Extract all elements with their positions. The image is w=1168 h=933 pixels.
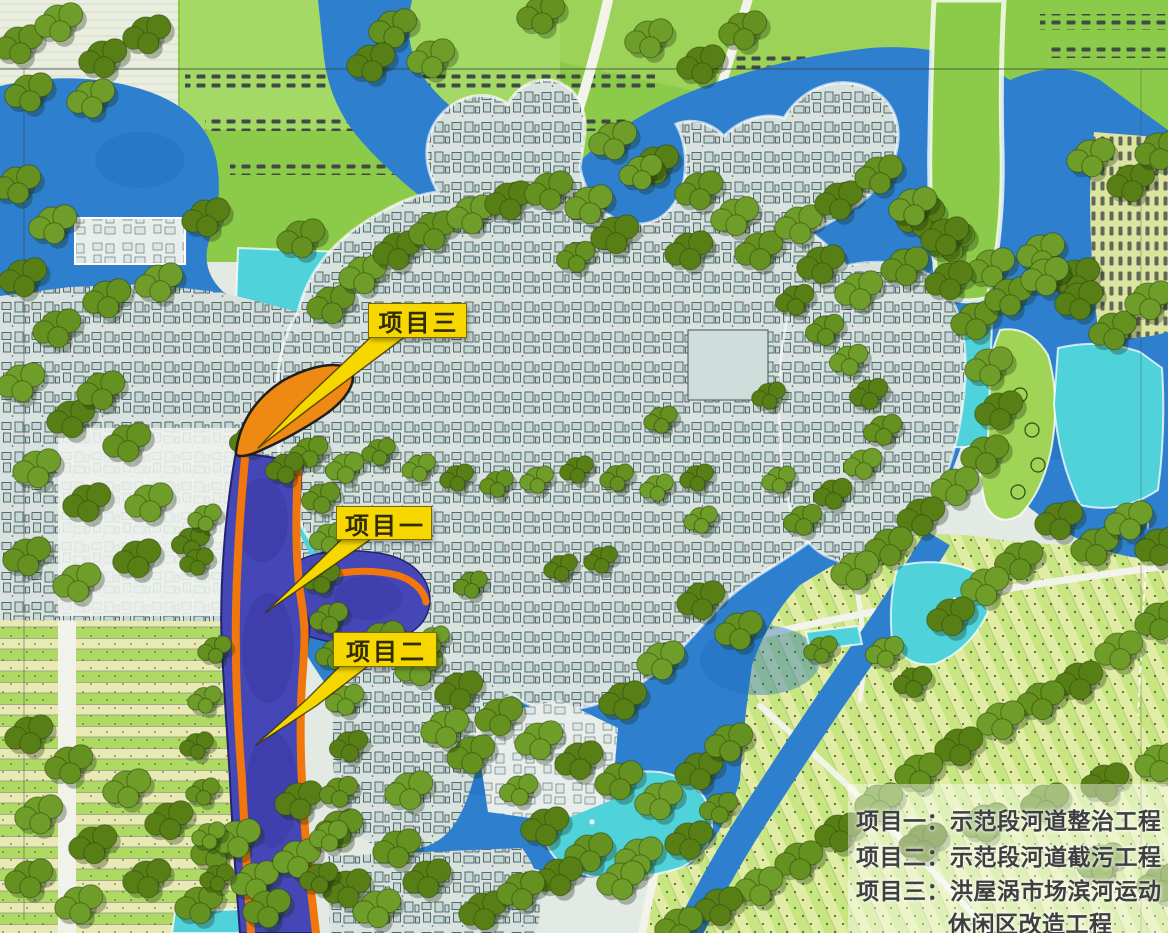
legend-line-project3: 项目三：洪屋涡市场滨河运动 bbox=[856, 872, 1162, 906]
legend-line-project2: 项目二：示范段河道截污工程 bbox=[856, 838, 1162, 872]
legend-line-project3-wrap: 休闲区改造工程 bbox=[948, 905, 1113, 933]
callout-project3: 项目三 bbox=[368, 303, 467, 338]
legend-line-project1: 项目一：示范段河道整治工程 bbox=[856, 802, 1162, 836]
callout-project1: 项目一 bbox=[336, 506, 432, 540]
callout-project2: 项目二 bbox=[333, 632, 437, 667]
site-plan-canvas: 项目三 项目一 项目二 项目一：示范段河道整治工程 项目二：示范段河道截污工程 … bbox=[0, 0, 1168, 933]
